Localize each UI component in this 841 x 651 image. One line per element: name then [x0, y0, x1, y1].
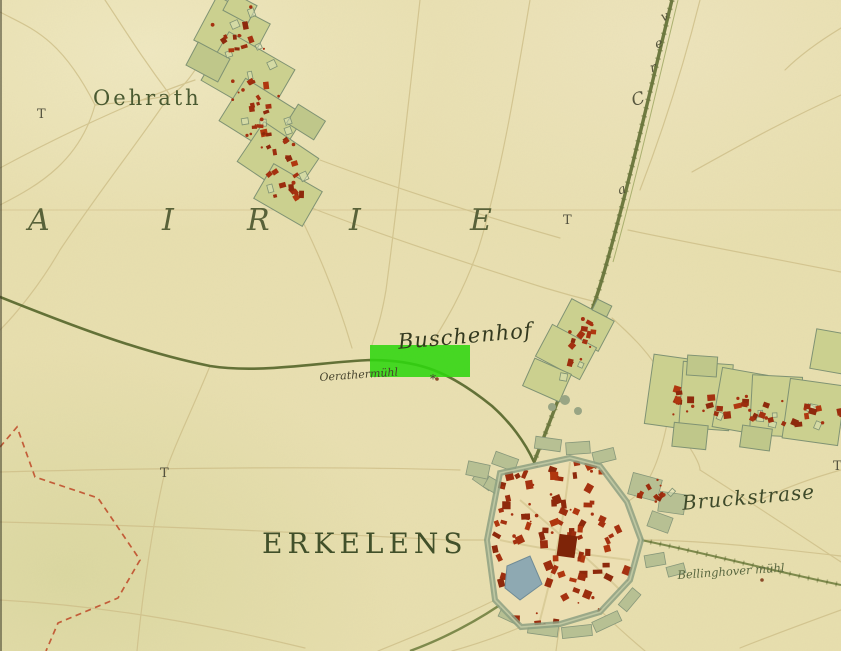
paper-texture [0, 0, 841, 651]
map-graphics [0, 0, 841, 651]
historic-map-canvas: Oehrath A I R I E Buschenhof Oerathermüh… [0, 0, 841, 651]
church-block [557, 534, 578, 558]
highlight-rectangle[interactable] [370, 345, 470, 377]
